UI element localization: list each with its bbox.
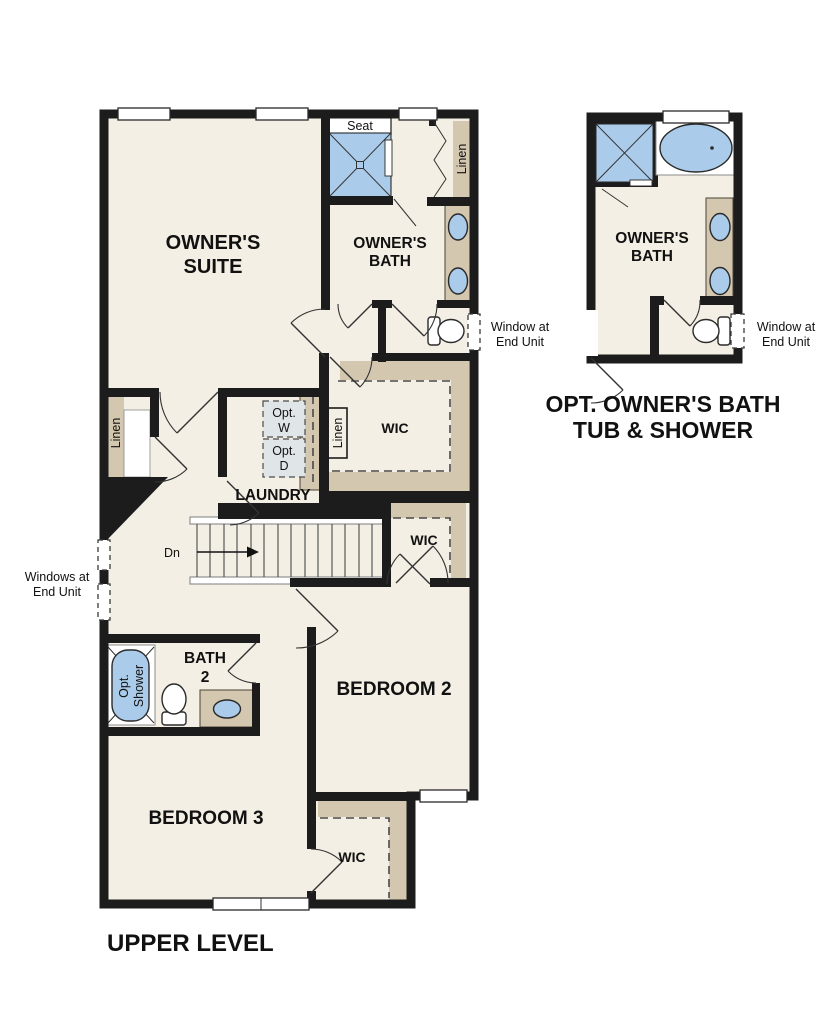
- sink: [710, 268, 730, 295]
- bedroom3-label: BEDROOM 3: [148, 808, 263, 829]
- opt-window-end-unit-note2: End Unit: [762, 335, 810, 349]
- bath2-label: BATH: [184, 650, 226, 667]
- windows-end-unit-note2: End Unit: [33, 585, 81, 599]
- linen-label-wic: Linen: [331, 418, 345, 449]
- linen-label-top: Linen: [455, 144, 469, 175]
- floor-plan-drawing: OWNER'S SUITE OWNER'S BATH Seat Linen Li…: [0, 0, 829, 1026]
- svg-text:D: D: [279, 459, 288, 473]
- sink: [449, 268, 468, 294]
- main-plan: OWNER'S SUITE OWNER'S BATH Seat Linen Li…: [25, 108, 550, 957]
- toilet: [693, 317, 730, 345]
- opt-bath-label: OWNER'S: [615, 230, 688, 247]
- opt-shower-label: Opt.: [117, 674, 131, 698]
- svg-text:Opt.: Opt.: [272, 444, 296, 458]
- owners-suite-label2: SUITE: [184, 256, 243, 278]
- laundry-label: LAUNDRY: [235, 487, 311, 504]
- svg-text:W: W: [278, 421, 290, 435]
- opt-entry-opening: [584, 310, 598, 356]
- end-unit-window: [98, 584, 110, 620]
- windows-end-unit-note: Windows at: [25, 570, 90, 584]
- opt-window-top: [663, 111, 729, 123]
- end-unit-window: [468, 314, 480, 350]
- sink: [449, 214, 468, 240]
- opt-plan-caption2: TUB & SHOWER: [573, 417, 754, 443]
- sink: [710, 214, 730, 241]
- sink: [214, 700, 241, 718]
- wic3-label: WIC: [338, 849, 365, 865]
- linen-label-hall: Linen: [109, 418, 123, 449]
- opt-tub: [656, 121, 734, 175]
- wic2-label: WIC: [410, 532, 437, 548]
- floor-plan-page: OWNER'S SUITE OWNER'S BATH Seat Linen Li…: [0, 0, 829, 1026]
- end-unit-window: [98, 540, 110, 570]
- optional-washer-dryer: Opt. W Opt. D: [263, 401, 305, 477]
- owners-bath-label: OWNER'S: [353, 235, 426, 252]
- hall-linen-floor: [124, 410, 150, 477]
- window-end-unit-note2: End Unit: [496, 335, 544, 349]
- svg-text:Opt.: Opt.: [272, 406, 296, 420]
- owners-bath-label2: BATH: [369, 253, 411, 270]
- opt-bath-label2: BATH: [631, 248, 673, 265]
- opt-shower-label2: Shower: [132, 665, 146, 707]
- owners-suite-label: OWNER'S: [166, 232, 261, 254]
- optional-bath-plan: OWNER'S BATH Window at End Unit OPT. OWN…: [545, 111, 815, 443]
- opt-window-end-unit-note: Window at: [757, 320, 816, 334]
- opt-plan-caption: OPT. OWNER'S BATH: [545, 391, 780, 417]
- window-end-unit-note: Window at: [491, 320, 550, 334]
- bath2-label2: 2: [201, 669, 210, 686]
- bedroom2-label: BEDROOM 2: [336, 679, 451, 700]
- wic-label: WIC: [381, 420, 408, 436]
- end-unit-window: [731, 314, 744, 348]
- plan-caption: UPPER LEVEL: [107, 930, 274, 957]
- seat-label: Seat: [347, 119, 373, 133]
- stairs-dn-label: Dn: [164, 546, 180, 560]
